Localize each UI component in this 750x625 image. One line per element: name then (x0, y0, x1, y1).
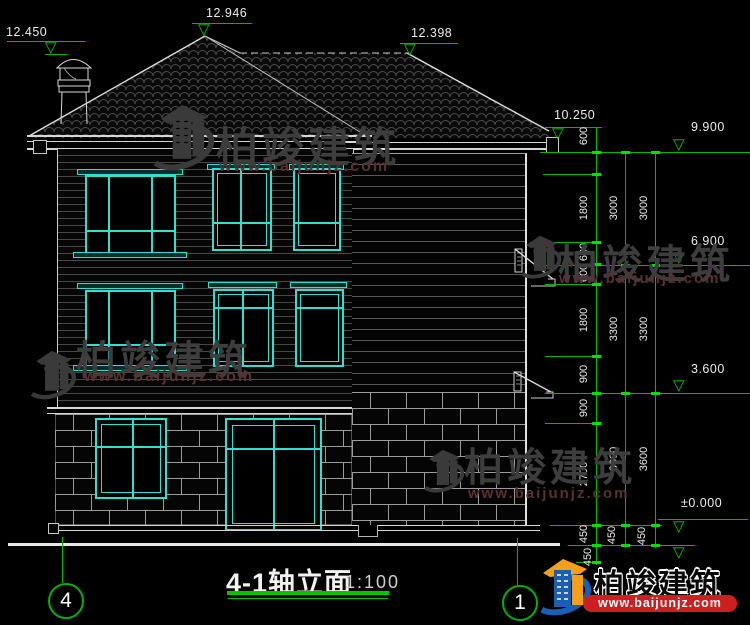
window-transom (297, 307, 342, 309)
window-transom (97, 446, 165, 448)
ground-line (8, 543, 560, 546)
elevation-triangle-icon: ▽ (673, 138, 685, 151)
dim-label: 1800 (578, 196, 590, 220)
elevation-triangle-icon: ▽ (45, 41, 57, 54)
entry-door-1f (225, 418, 322, 531)
watermark-logo-icon (147, 98, 217, 180)
watermark-url: www.baijunjz.com (219, 158, 389, 176)
window-sill (73, 252, 187, 258)
dim-label: 450 (578, 525, 590, 543)
grid-line-4 (62, 537, 63, 583)
grid-line-1 (517, 538, 518, 585)
window-sill (290, 282, 347, 288)
dim-tick (621, 524, 630, 527)
elevation-triangle-icon: ▽ (404, 43, 416, 56)
dim-tick (621, 151, 630, 154)
company-logo-icon (533, 552, 593, 624)
dim-tick (592, 173, 601, 176)
floor-band-line (47, 407, 372, 409)
title-underline (227, 591, 389, 595)
window-3f-large (85, 175, 176, 256)
elevation-value: 9.900 (691, 120, 725, 134)
window-inner-frame (300, 294, 339, 362)
elevation-triangle-icon: ▽ (198, 23, 210, 36)
dim-tick (651, 524, 660, 527)
elevation-triangle-icon: ▽ (552, 127, 564, 140)
window-inner-frame (101, 424, 161, 493)
dim-tick (621, 544, 630, 547)
window-3f-right (293, 168, 341, 251)
dim-label: 3000 (638, 196, 650, 220)
grid-bubble-4: 4 (48, 583, 84, 619)
window-inner-frame (217, 173, 267, 246)
window-mullion (132, 420, 134, 497)
dim-tick (592, 355, 601, 358)
window-mullion (240, 170, 242, 249)
dim-tick (592, 544, 601, 547)
dim-tick (651, 392, 660, 395)
elevation-value: 3.600 (691, 362, 725, 376)
window-sill (208, 282, 277, 288)
dim-tick (651, 544, 660, 547)
elevation-triangle-icon: ▽ (673, 546, 685, 559)
dim-label: 900 (578, 365, 590, 383)
plinth-step (358, 525, 378, 537)
dim-tick (592, 422, 601, 425)
dim-label: 1800 (578, 308, 590, 332)
drawing-scale: 1:100 (345, 572, 400, 593)
elevation-value: ±0.000 (681, 496, 722, 510)
dim-chain-outer (655, 152, 656, 548)
window-transom (295, 222, 339, 224)
dim-label: 450 (606, 526, 618, 544)
dim-label: 3600 (638, 447, 650, 471)
dim-tick (592, 151, 601, 154)
watermark-logo-icon (420, 438, 466, 506)
dim-label: 450 (636, 527, 648, 545)
level-line-9900 (540, 152, 750, 153)
dim-label: 3300 (608, 317, 620, 341)
level-line-3600 (545, 393, 750, 394)
chimney (50, 48, 98, 128)
elevation-drawing-canvas: ▽ 12.450 ▽ 12.946 ▽ 12.398 ▽ 10.250 ▽ 9.… (0, 0, 750, 625)
company-logo-url: www.baijunjz.com (583, 595, 737, 612)
door-transom (227, 448, 320, 450)
title-underline (228, 598, 388, 599)
level-line-zero (658, 519, 748, 520)
window-inner-frame (298, 173, 336, 246)
elevation-triangle-icon: ▽ (673, 379, 685, 392)
watermark-url: www.baijunjz.com (84, 368, 254, 386)
window-transom (214, 222, 270, 224)
eave-end-cap (33, 140, 47, 154)
watermark-url: www.baijunjz.com (559, 270, 720, 287)
door-mullion (273, 420, 275, 529)
dim-label: 3300 (638, 317, 650, 341)
elevation-value: 12.398 (411, 26, 452, 40)
dim-label: 900 (578, 399, 590, 417)
window-2f-right (295, 289, 344, 367)
dim-label: 3000 (608, 196, 620, 220)
plinth-line (48, 525, 540, 526)
dim-tick (621, 392, 630, 395)
window-sill (77, 283, 183, 289)
dim-tick (651, 151, 660, 154)
window-3f-middle (212, 168, 272, 251)
dim-tick (592, 392, 601, 395)
dim-label: 600 (578, 127, 590, 145)
right-wing-siding (352, 153, 527, 393)
watermark-url: www.baijunjz.com (468, 485, 629, 502)
dim-tick (592, 524, 601, 527)
watermark-logo-icon (26, 330, 78, 422)
window-mullion (151, 177, 153, 254)
window-1f (95, 418, 167, 499)
elevation-value: 12.946 (206, 6, 247, 20)
elevation-value: 10.250 (554, 108, 595, 122)
window-mullion (108, 177, 110, 254)
watermark-logo-icon (517, 228, 563, 288)
window-transom (215, 307, 272, 309)
elevation-value: 12.450 (6, 25, 47, 39)
elevation-triangle-icon: ▽ (673, 520, 685, 533)
plinth-end-cap (48, 523, 59, 534)
plinth-line (48, 530, 540, 531)
window-transom (87, 230, 174, 232)
